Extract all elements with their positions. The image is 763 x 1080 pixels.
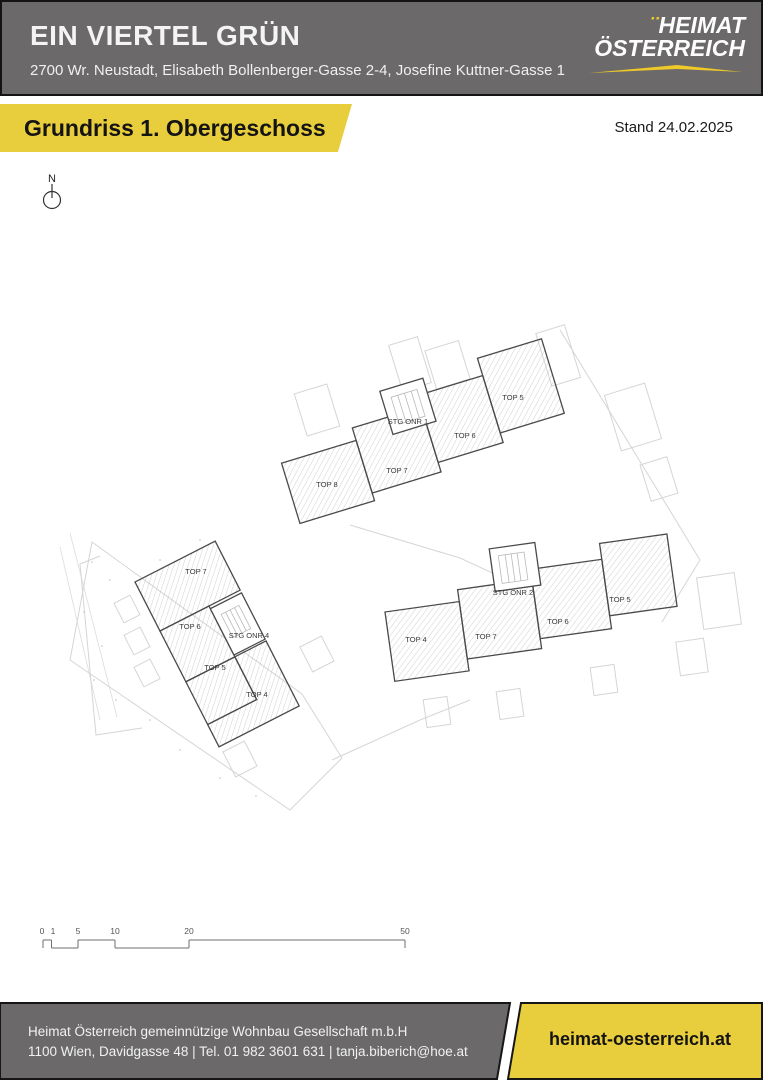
label-stg4-top5: TOP 5 xyxy=(204,663,225,672)
label-stg2-top4: TOP 4 xyxy=(405,635,426,644)
label-stg2-top6: TOP 6 xyxy=(547,617,568,626)
svg-text:20: 20 xyxy=(184,926,194,936)
footer-bar: Heimat Österreich gemeinnützige Wohnbau … xyxy=(0,1002,763,1080)
north-arrow-icon: N xyxy=(44,173,61,209)
project-address: 2700 Wr. Neustadt, Elisabeth Bollenberge… xyxy=(30,62,565,79)
label-stg4-top7: TOP 7 xyxy=(185,567,206,576)
svg-text:5: 5 xyxy=(76,926,81,936)
label-stg1-top5: TOP 5 xyxy=(502,393,523,402)
unit-stg2-top6 xyxy=(530,559,611,638)
scale-bar: 0 1 5 10 20 50 xyxy=(40,926,410,948)
label-stg1-top8: TOP 8 xyxy=(316,480,337,489)
logo-umlaut-dots: ¨ xyxy=(650,12,659,38)
footer-website-link[interactable]: heimat-oesterreich.at xyxy=(516,1029,763,1050)
heimat-oesterreich-logo: ¨HEIMAT ÖSTERREICH xyxy=(585,14,745,74)
project-title: EIN VIERTEL GRÜN xyxy=(30,20,300,52)
label-stg4-top6: TOP 6 xyxy=(179,622,200,631)
svg-text:1: 1 xyxy=(51,926,56,936)
header-bar: EIN VIERTEL GRÜN 2700 Wr. Neustadt, Elis… xyxy=(0,0,763,96)
label-stg2-top7: TOP 7 xyxy=(475,632,496,641)
svg-text:50: 50 xyxy=(400,926,410,936)
site-plan-drawing: TOP 8 TOP 7 STG ONR 1 TOP 6 TOP 5 TOP 7 … xyxy=(0,160,763,960)
label-stg-onr-2: STG ONR 2 xyxy=(493,588,533,597)
building-stiege-4 xyxy=(135,541,299,747)
label-stg-onr-4: STG ONR 4 xyxy=(229,631,269,640)
svg-text:N: N xyxy=(48,173,56,185)
footer-contact-line: 1100 Wien, Davidgasse 48 | Tel. 01 982 3… xyxy=(28,1042,468,1062)
logo-line-2: ÖSTERREICH xyxy=(585,37,745,60)
plan-date: Stand 24.02.2025 xyxy=(615,119,733,136)
unit-stg2-top4 xyxy=(385,602,469,682)
drawing-title-banner: Grundriss 1. Obergeschoss xyxy=(0,104,352,152)
drawing-title: Grundriss 1. Obergeschoss xyxy=(24,104,326,152)
label-stg-onr-1: STG ONR 1 xyxy=(388,417,428,426)
logo-swoosh-icon xyxy=(585,64,745,74)
label-stg1-top6: TOP 6 xyxy=(454,431,475,440)
svg-text:10: 10 xyxy=(110,926,120,936)
footer-company-block: Heimat Österreich gemeinnützige Wohnbau … xyxy=(28,1022,468,1061)
building-stiege-1 xyxy=(269,339,573,524)
stairwell-stg-onr-2 xyxy=(489,542,541,591)
logo-line-1: ¨HEIMAT xyxy=(585,14,745,37)
label-stg2-top5: TOP 5 xyxy=(609,595,630,604)
label-stg1-top7: TOP 7 xyxy=(386,466,407,475)
svg-text:0: 0 xyxy=(40,926,45,936)
footer-company-name: Heimat Österreich gemeinnützige Wohnbau … xyxy=(28,1022,468,1042)
label-stg4-top4: TOP 4 xyxy=(246,690,267,699)
building-stiege-2 xyxy=(378,524,682,681)
floorplan-page: EIN VIERTEL GRÜN 2700 Wr. Neustadt, Elis… xyxy=(0,0,763,1080)
